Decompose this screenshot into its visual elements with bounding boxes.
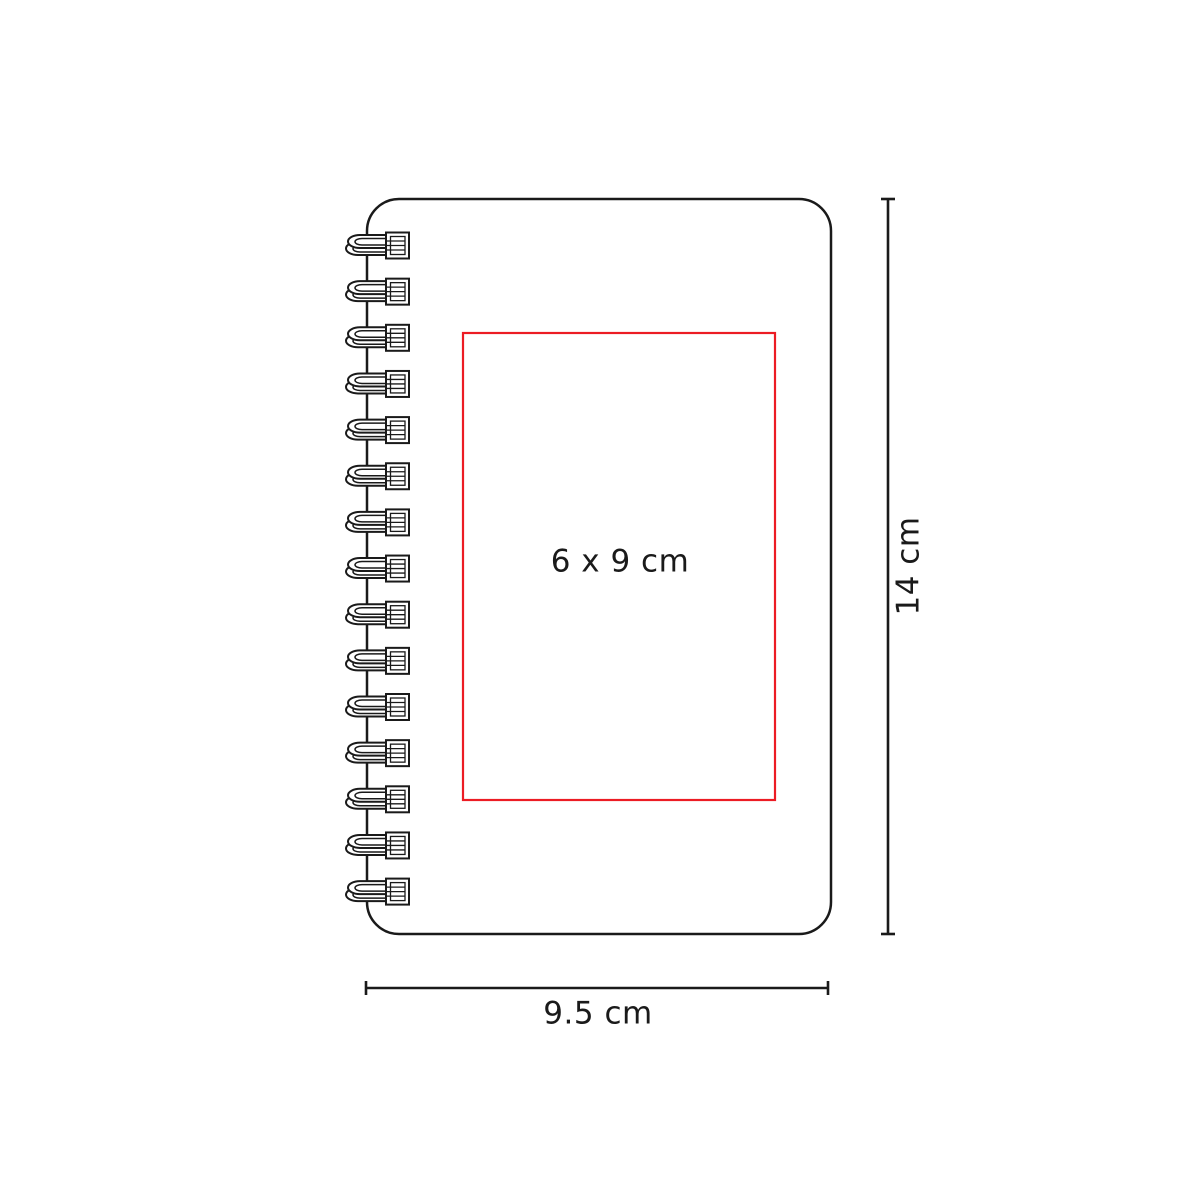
- spiral-ring: [346, 786, 409, 812]
- spiral-ring: [346, 832, 409, 858]
- spiral-ring: [346, 233, 409, 259]
- spiral-ring: [346, 417, 409, 443]
- spiral-ring: [346, 463, 409, 489]
- spiral-ring: [346, 648, 409, 674]
- spiral-ring: [346, 602, 409, 628]
- notebook-dimension-diagram: 6 x 9 cm 14 cm 9.5 cm: [0, 0, 1200, 1200]
- spiral-ring: [346, 879, 409, 905]
- spiral-ring: [346, 509, 409, 535]
- spiral-ring: [346, 279, 409, 305]
- spiral-ring: [346, 740, 409, 766]
- height-dimension-label: 14 cm: [894, 516, 925, 615]
- spiral-ring: [346, 325, 409, 351]
- width-dimension-line: [366, 981, 828, 995]
- spiral-ring: [346, 371, 409, 397]
- spiral-ring: [346, 694, 409, 720]
- spiral-ring: [346, 556, 409, 582]
- spiral-binding: [346, 233, 409, 905]
- imprint-area-label: 6 x 9 cm: [551, 547, 690, 578]
- width-dimension-label: 9.5 cm: [543, 999, 652, 1030]
